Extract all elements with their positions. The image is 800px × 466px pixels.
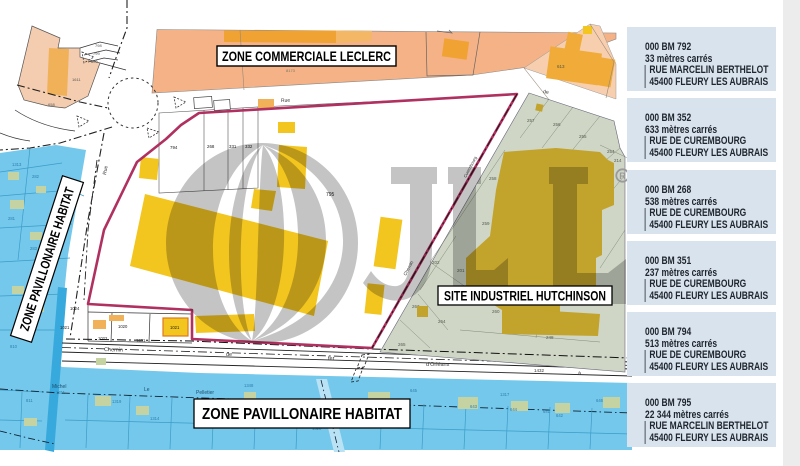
svg-text:810: 810 bbox=[10, 344, 18, 349]
svg-text:SITE INDUSTRIEL HUTCHINSON: SITE INDUSTRIEL HUTCHINSON bbox=[444, 289, 606, 304]
svg-text:Rue: Rue bbox=[281, 98, 291, 104]
svg-text:R: R bbox=[619, 171, 626, 181]
svg-text:1313: 1313 bbox=[12, 162, 22, 167]
svg-text:258: 258 bbox=[489, 176, 497, 181]
svg-text:800: 800 bbox=[91, 59, 98, 64]
svg-text:613: 613 bbox=[557, 64, 565, 69]
svg-text:Le: Le bbox=[144, 387, 150, 393]
svg-text:257: 257 bbox=[527, 118, 535, 123]
svg-text:255: 255 bbox=[579, 134, 587, 139]
svg-text:1311: 1311 bbox=[56, 390, 66, 395]
svg-text:214: 214 bbox=[614, 158, 622, 163]
svg-text:259: 259 bbox=[482, 221, 490, 226]
svg-text:658: 658 bbox=[48, 102, 55, 107]
svg-text:644: 644 bbox=[510, 407, 518, 412]
svg-text:d'Orléans: d'Orléans bbox=[426, 362, 450, 368]
svg-text:256: 256 bbox=[553, 122, 561, 127]
svg-text:268: 268 bbox=[207, 144, 215, 149]
svg-text:Chemin: Chemin bbox=[104, 347, 123, 354]
svg-text:1611: 1611 bbox=[72, 77, 81, 82]
svg-text:799: 799 bbox=[93, 51, 100, 56]
svg-text:202: 202 bbox=[432, 260, 440, 265]
svg-text:1020: 1020 bbox=[118, 324, 128, 329]
svg-text:1317: 1317 bbox=[500, 392, 510, 397]
svg-text:794: 794 bbox=[170, 145, 178, 150]
svg-text:798: 798 bbox=[95, 43, 102, 48]
svg-text:281: 281 bbox=[8, 216, 16, 221]
svg-text:811: 811 bbox=[26, 398, 33, 403]
svg-text:1348: 1348 bbox=[244, 383, 254, 388]
svg-text:642: 642 bbox=[556, 413, 564, 418]
svg-text:283: 283 bbox=[30, 246, 38, 251]
svg-text:282: 282 bbox=[32, 174, 40, 179]
svg-text:1021: 1021 bbox=[60, 325, 70, 330]
svg-text:1432: 1432 bbox=[534, 368, 545, 373]
svg-text:646: 646 bbox=[596, 398, 604, 403]
svg-text:264: 264 bbox=[438, 319, 446, 324]
svg-text:Pelletier: Pelletier bbox=[196, 390, 214, 396]
svg-text:254: 254 bbox=[607, 149, 615, 154]
svg-text:fer: fer bbox=[328, 356, 335, 362]
svg-text:265: 265 bbox=[398, 342, 406, 347]
svg-text:260: 260 bbox=[492, 309, 500, 314]
svg-text:1021: 1021 bbox=[170, 325, 180, 330]
svg-text:643: 643 bbox=[470, 404, 478, 409]
svg-text:ZONE PAVILLONAIRE HABITAT: ZONE PAVILLONAIRE HABITAT bbox=[202, 406, 402, 423]
svg-text:1319: 1319 bbox=[112, 399, 122, 404]
svg-text:641: 641 bbox=[543, 409, 551, 414]
svg-text:1022: 1022 bbox=[98, 336, 108, 341]
svg-text:de: de bbox=[226, 352, 232, 358]
svg-text:248: 248 bbox=[546, 335, 554, 340]
svg-text:ZONE COMMERCIALE LECLERC: ZONE COMMERCIALE LECLERC bbox=[222, 48, 391, 64]
svg-text:8173: 8173 bbox=[286, 68, 296, 73]
svg-text:1314: 1314 bbox=[150, 416, 160, 421]
svg-text:645: 645 bbox=[410, 388, 418, 393]
